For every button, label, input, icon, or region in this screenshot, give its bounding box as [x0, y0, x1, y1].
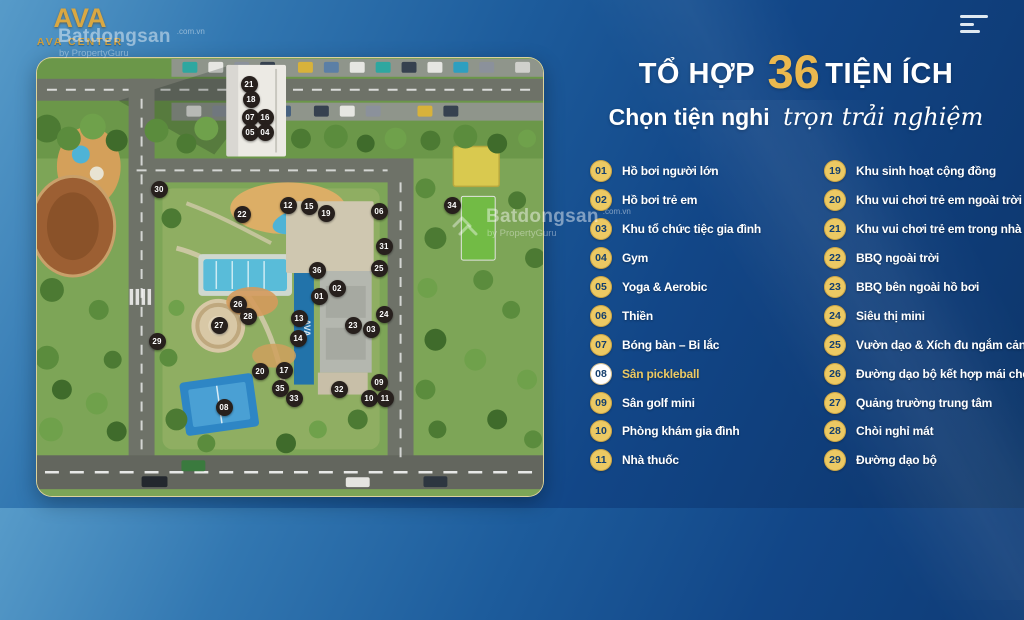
map-marker-09: 09 [371, 374, 388, 391]
legend-label: Khu tổ chức tiệc gia đình [622, 222, 761, 236]
watermark-domain: .com.vn [603, 208, 631, 216]
legend-number-badge: 11 [590, 449, 612, 471]
map-marker-20: 20 [252, 363, 269, 380]
map-marker-21: 21 [241, 76, 258, 93]
subtitle-script: trọn trải nghiệm [783, 103, 983, 131]
legend-label: Thiền [622, 309, 653, 323]
legend-label: Hồ bơi người lớn [622, 164, 718, 178]
legend-number-badge: 24 [824, 305, 846, 327]
map-marker-12: 12 [280, 197, 297, 214]
legend-item-07: 07Bóng bàn – Bi lắc [590, 330, 761, 359]
legend-item-10: 10Phòng khám gia đình [590, 417, 761, 446]
legend-label: Hồ bơi trẻ em [622, 193, 697, 207]
map-marker-05: 05 [242, 124, 259, 141]
legend-label: BBQ bên ngoài hồ bơi [856, 280, 979, 294]
legend-item-19: 19Khu sinh hoạt cộng đồng [824, 157, 1024, 186]
legend-number-badge: 01 [590, 160, 612, 182]
legend-number-badge: 29 [824, 449, 846, 471]
legend-label: Bóng bàn – Bi lắc [622, 338, 719, 352]
legend-item-27: 27Quảng trường trung tâm [824, 388, 1024, 417]
map-marker-02: 02 [329, 280, 346, 297]
legend-item-26: 26Đường dạo bộ kết hợp mái che [824, 359, 1024, 388]
watermark-center: Batdongsan .com.vn by PropertyGuru [452, 207, 631, 239]
legend-number-badge: 22 [824, 247, 846, 269]
legend-number-badge: 26 [824, 363, 846, 385]
legend-number-badge: 08 [590, 363, 612, 385]
map-marker-03: 03 [363, 321, 380, 338]
legend-item-11: 11Nhà thuốc [590, 446, 761, 475]
site-plan-map: AVA [36, 57, 544, 497]
map-marker-14: 14 [290, 330, 307, 347]
legend-number-badge: 06 [590, 305, 612, 327]
legend-label: Sân pickleball [622, 367, 699, 381]
legend-number-badge: 19 [824, 160, 846, 182]
legend-number-badge: 04 [590, 247, 612, 269]
map-marker-10: 10 [361, 390, 378, 407]
legend-item-25: 25Vườn dạo & Xích đu ngắm cảnh [824, 330, 1024, 359]
map-marker-18: 18 [243, 91, 260, 108]
legend-label: Đường dạo bộ kết hợp mái che [856, 367, 1024, 381]
legend-item-06: 06Thiền [590, 301, 761, 330]
watermark-domain: .com.vn [177, 28, 205, 36]
legend-item-23: 23BBQ bên ngoài hồ bơi [824, 273, 1024, 302]
amenities-header: TỔ HỢP 36 TIỆN ÍCH Chọn tiện nghi trọn t… [578, 44, 1014, 131]
hamburger-bar [960, 23, 974, 26]
map-marker-30: 30 [151, 181, 168, 198]
map-marker-11: 11 [377, 390, 394, 407]
map-marker-36: 36 [309, 262, 326, 279]
legend-number-badge: 10 [590, 420, 612, 442]
hamburger-menu-icon[interactable] [960, 15, 990, 38]
legend-number-badge: 07 [590, 334, 612, 356]
legend-label: Gym [622, 251, 648, 265]
watermark-top-left: Batdongsan .com.vn by PropertyGuru [58, 27, 205, 59]
legend-item-04: 04Gym [590, 244, 761, 273]
legend-number-badge: 05 [590, 276, 612, 298]
legend-number-badge: 20 [824, 189, 846, 211]
legend-number-badge: 25 [824, 334, 846, 356]
map-marker-16: 16 [257, 109, 274, 126]
legend-label: Chòi nghỉ mát [856, 424, 933, 438]
legend-item-21: 21Khu vui chơi trẻ em trong nhà [824, 215, 1024, 244]
map-marker-25: 25 [371, 260, 388, 277]
legend-label: Siêu thị mini [856, 309, 925, 323]
legend-item-01: 01Hồ bơi người lớn [590, 157, 761, 186]
legend-item-05: 05Yoga & Aerobic [590, 273, 761, 302]
map-marker-23: 23 [345, 317, 362, 334]
title-suffix: TIỆN ÍCH [825, 58, 953, 90]
legend-label: Phòng khám gia đình [622, 424, 740, 438]
legend-label: Quảng trường trung tâm [856, 396, 992, 410]
map-marker-13: 13 [291, 310, 308, 327]
legend-label: Yoga & Aerobic [622, 280, 707, 294]
legend-number-badge: 21 [824, 218, 846, 240]
legend-number-badge: 27 [824, 392, 846, 414]
legend-item-20: 20Khu vui chơi trẻ em ngoài trời [824, 186, 1024, 215]
legend-label: BBQ ngoài trời [856, 251, 939, 265]
map-marker-28: 28 [240, 308, 257, 325]
legend-label: Nhà thuốc [622, 453, 679, 467]
legend-label: Khu sinh hoạt cộng đồng [856, 164, 996, 178]
map-marker-19: 19 [318, 205, 335, 222]
map-marker-04: 04 [257, 124, 274, 141]
map-marker-15: 15 [301, 198, 318, 215]
page-title: TỔ HỢP 36 TIỆN ÍCH [578, 44, 1014, 99]
map-marker-07: 07 [242, 109, 259, 126]
legend-item-28: 28Chòi nghỉ mát [824, 417, 1024, 446]
legend-label: Vườn dạo & Xích đu ngắm cảnh [856, 338, 1024, 352]
legend-column: 19Khu sinh hoạt cộng đồng20Khu vui chơi … [824, 157, 1024, 475]
map-marker-17: 17 [276, 362, 293, 379]
watermark-byline: by PropertyGuru [487, 229, 631, 239]
watermark-name: Batdongsan [58, 27, 171, 46]
watermark-name: Batdongsan [486, 207, 599, 226]
legend-number-badge: 09 [590, 392, 612, 414]
legend-label: Khu vui chơi trẻ em trong nhà [856, 222, 1021, 236]
batdongsan-house-icon [452, 214, 478, 238]
hamburger-bar [960, 15, 988, 18]
site-map-illustration: AVA [37, 58, 544, 497]
legend-item-22: 22BBQ ngoài trời [824, 244, 1024, 273]
watermark-byline: by PropertyGuru [59, 49, 205, 59]
map-marker-08: 08 [216, 399, 233, 416]
legend-item-24: 24Siêu thị mini [824, 301, 1024, 330]
legend-label: Khu vui chơi trẻ em ngoài trời [856, 193, 1022, 207]
subtitle-bold: Chọn tiện nghi [609, 104, 770, 130]
legend-column: 01Hồ bơi người lớn02Hồ bơi trẻ em03Khu t… [590, 157, 761, 475]
map-marker-22: 22 [234, 206, 251, 223]
legend-label: Đường dạo bộ [856, 453, 937, 467]
map-marker-31: 31 [376, 238, 393, 255]
title-prefix: TỔ HỢP [639, 58, 755, 90]
map-marker-06: 06 [371, 203, 388, 220]
hamburger-bar [960, 30, 980, 33]
page-subtitle: Chọn tiện nghi trọn trải nghiệm [578, 103, 1014, 131]
title-number: 36 [768, 45, 820, 98]
legend-label: Sân golf mini [622, 396, 695, 410]
legend-item-08: 08Sân pickleball [590, 359, 761, 388]
legend-number-badge: 28 [824, 420, 846, 442]
map-marker-29: 29 [149, 333, 166, 350]
legend-item-29: 29Đường dạo bộ [824, 446, 1024, 475]
map-marker-32: 32 [331, 381, 348, 398]
legend-item-09: 09Sân golf mini [590, 388, 761, 417]
map-marker-27: 27 [211, 317, 228, 334]
map-marker-33: 33 [286, 390, 303, 407]
legend-number-badge: 23 [824, 276, 846, 298]
map-marker-01: 01 [311, 288, 328, 305]
map-marker-24: 24 [376, 306, 393, 323]
